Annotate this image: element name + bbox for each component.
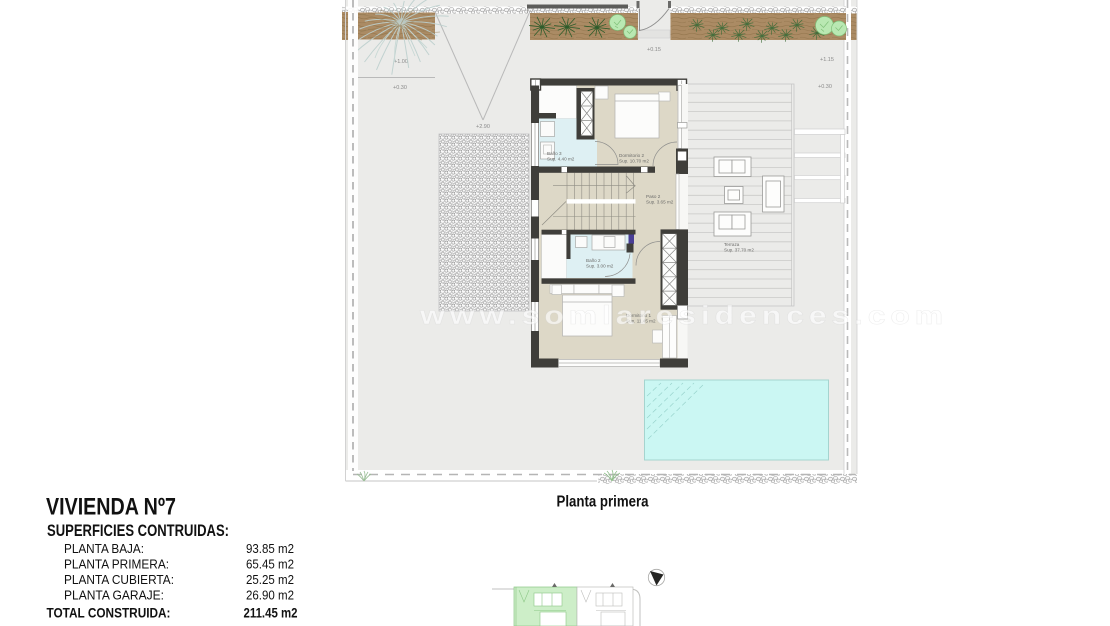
svg-text:PLANTA PRIMERA:: PLANTA PRIMERA: — [64, 557, 169, 572]
svg-text:SUPERFICIES CONTRUIDAS:: SUPERFICIES CONTRUIDAS: — [47, 522, 229, 540]
svg-text:211.45 m2: 211.45 m2 — [244, 606, 298, 621]
svg-text:+0.15: +0.15 — [647, 47, 661, 53]
svg-text:Paso 2: Paso 2 — [646, 194, 661, 199]
svg-text:VIVIENDA Nº7: VIVIENDA Nº7 — [46, 494, 176, 521]
svg-text:+2.90: +2.90 — [476, 124, 490, 130]
svg-text:PLANTA GARAJE:: PLANTA GARAJE: — [64, 588, 164, 603]
svg-text:PLANTA BAJA:: PLANTA BAJA: — [64, 541, 144, 556]
svg-text:TOTAL CONSTRUIDA:: TOTAL CONSTRUIDA: — [47, 606, 171, 621]
svg-text:Sup. 3.00 m2: Sup. 3.00 m2 — [586, 264, 614, 269]
svg-text:Planta primera: Planta primera — [557, 494, 649, 511]
svg-text:Baño 2: Baño 2 — [586, 258, 601, 263]
svg-text:Sup. 37.70 m2: Sup. 37.70 m2 — [724, 248, 754, 253]
svg-text:+0.30: +0.30 — [393, 85, 407, 91]
svg-text:+1.15: +1.15 — [820, 57, 834, 63]
svg-text:Sup. 10.70 m2: Sup. 10.70 m2 — [619, 159, 649, 164]
svg-text:Dormitorio 2: Dormitorio 2 — [619, 153, 644, 158]
svg-text:26.90 m2: 26.90 m2 — [246, 588, 294, 603]
svg-text:Sup. 4.40 m2: Sup. 4.40 m2 — [547, 157, 575, 162]
svg-text:www.somlaresidences.com: www.somlaresidences.com — [419, 300, 948, 330]
svg-text:Baño 3: Baño 3 — [547, 151, 562, 156]
svg-text:65.45 m2: 65.45 m2 — [246, 557, 294, 572]
svg-text:Terraza: Terraza — [724, 242, 740, 247]
svg-text:PLANTA CUBIERTA:: PLANTA CUBIERTA: — [64, 572, 174, 587]
svg-text:25.25 m2: 25.25 m2 — [246, 572, 294, 587]
svg-text:Sup. 3.65 m2: Sup. 3.65 m2 — [646, 200, 674, 205]
svg-text:+0.30: +0.30 — [818, 84, 832, 90]
svg-text:93.85 m2: 93.85 m2 — [246, 541, 294, 556]
svg-text:+1.00: +1.00 — [394, 59, 408, 65]
